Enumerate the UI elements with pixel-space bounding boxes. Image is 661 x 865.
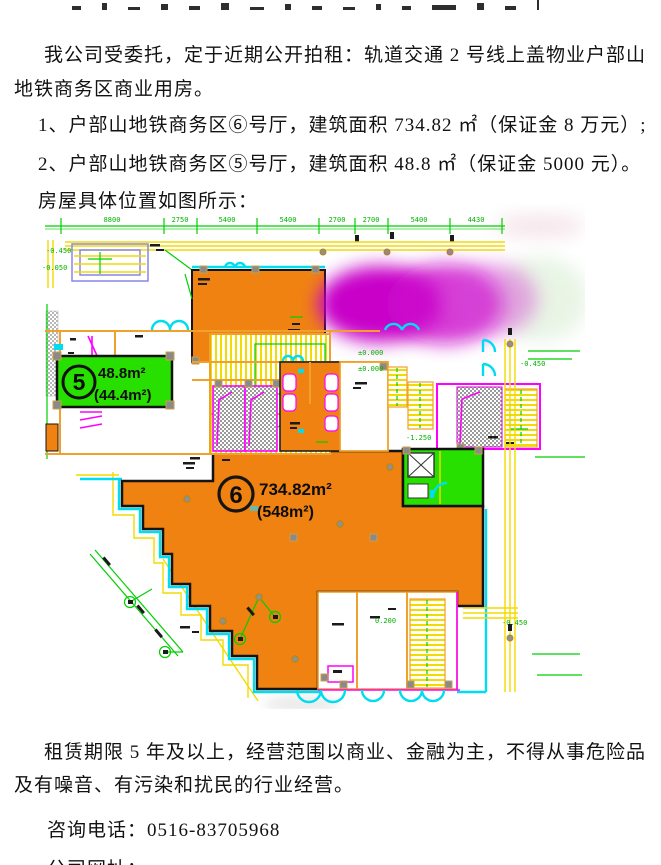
level-label: -1.250 xyxy=(406,434,431,442)
dim-label: 5400 xyxy=(411,216,428,224)
dim-label: 2700 xyxy=(363,216,380,224)
terms-line-1: 租赁期限 5 年及以上，经营范围以商业、金融为主，不得从事危险品 xyxy=(14,737,646,764)
unit5-number: 5 xyxy=(73,369,86,395)
level-label: -0.050 xyxy=(42,264,67,272)
lot-item-2: 2、户部山地铁商务区⑤号厅，建筑面积 48.8 ㎡（保证金 5000 元）。 xyxy=(8,149,641,176)
level-label: ±0.000 xyxy=(358,349,383,357)
terms-line-2: 及有噪音、有污染和扰民的行业经营。 xyxy=(14,770,354,797)
unit5-area: 48.8m² xyxy=(98,365,146,382)
phone-number: 0516-83705968 xyxy=(147,820,280,841)
level-label: 0.200 xyxy=(375,617,396,625)
auction-notice-page: 我公司受委托，定于近期公开拍租：轨道交通 2 号线上盖物业户部山 地铁商务区商业… xyxy=(0,0,661,865)
level-label: -0.450 xyxy=(46,247,71,255)
dim-label: 2750 xyxy=(172,216,189,224)
clipped-title-fragments xyxy=(72,0,592,10)
website-label: 公司网址： xyxy=(47,859,147,865)
level-label: -0.450 xyxy=(502,619,527,627)
intro-line-1: 我公司受委托，定于近期公开拍租：轨道交通 2 号线上盖物业户部山 xyxy=(14,40,646,67)
phone-label: 咨询电话： xyxy=(47,820,147,841)
unit6-number: 6 xyxy=(229,482,242,509)
phone-line: 咨询电话：0516-83705968 xyxy=(17,815,280,842)
dim-label: 8800 xyxy=(104,216,121,224)
unit6-area-paren: (548m²) xyxy=(257,504,314,521)
unit5-area-paren: (44.4m²) xyxy=(94,387,152,404)
level-label: ±0.000 xyxy=(358,365,383,373)
bottom-rooms: 0.200 xyxy=(297,592,460,702)
intro-line-2: 地铁商务区商业用房。 xyxy=(14,74,214,101)
level-label: -0.450 xyxy=(520,360,545,368)
elevator-room xyxy=(403,447,483,506)
website-link[interactable]: www.xzzqpm.com xyxy=(147,859,303,865)
dimension-grid: 8800 2750 5400 5400 2700 2700 5400 4430 xyxy=(45,216,505,242)
dim-label: 5400 xyxy=(219,216,236,224)
unit6-area: 734.82m² xyxy=(259,480,332,499)
website-line: 公司网址：www.xzzqpm.com xyxy=(17,854,303,865)
unit5-label: 5 48.8m² (44.4m²) xyxy=(53,352,174,409)
lot-item-1: 1、户部山地铁商务区⑥号厅，建筑面积 734.82 ㎡（保证金 8 万元）; xyxy=(8,110,647,137)
dim-label: 2700 xyxy=(329,216,346,224)
dim-label: 4430 xyxy=(468,216,485,224)
dim-label: 5400 xyxy=(280,216,297,224)
floor-plan-image: 8800 2750 5400 5400 2700 2700 5400 4430 xyxy=(40,204,585,709)
